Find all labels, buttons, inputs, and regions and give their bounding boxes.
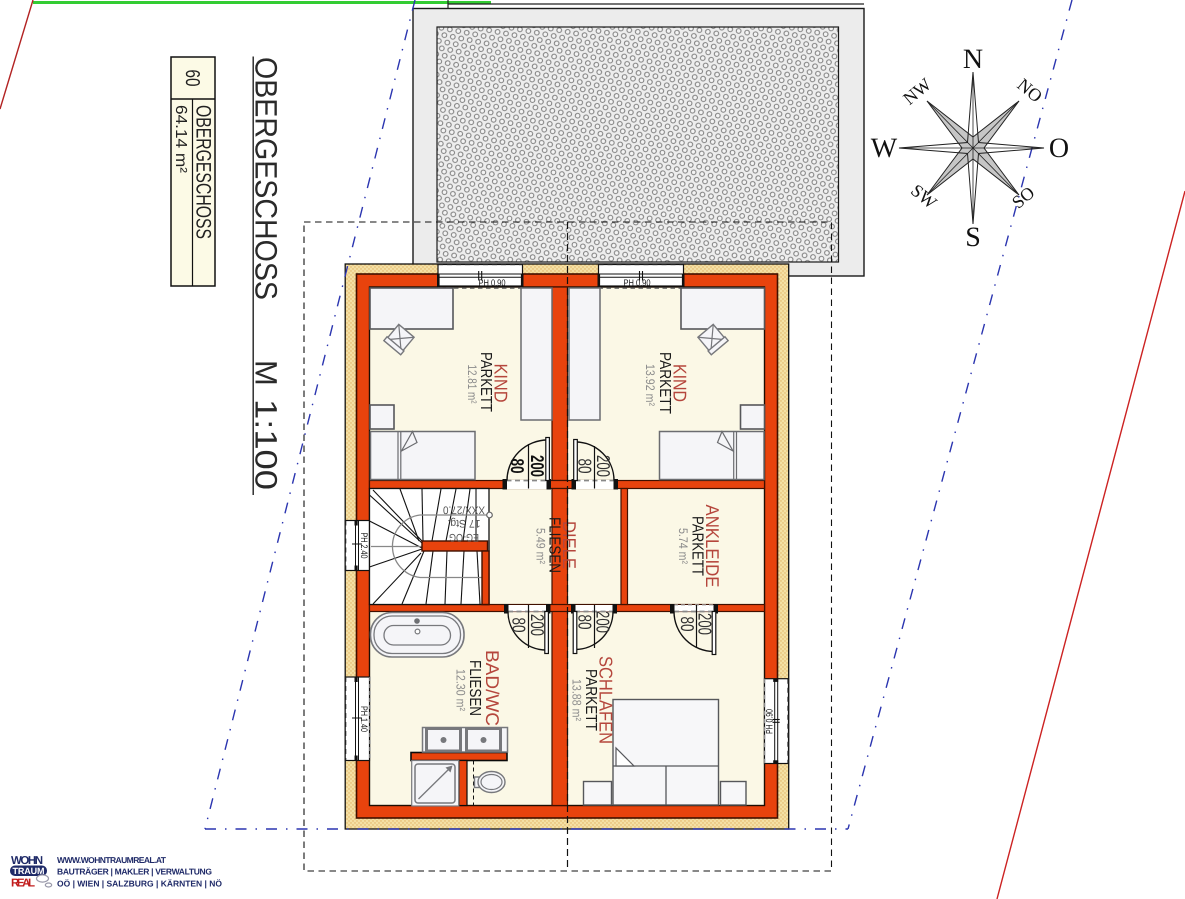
svg-text:PH 1.40: PH 1.40 <box>358 706 369 732</box>
svg-text:OBERGESCHOSS: OBERGESCHOSS <box>249 57 284 300</box>
svg-text:200: 200 <box>593 455 614 477</box>
svg-text:N: N <box>963 44 983 75</box>
svg-text:PH 0.90: PH 0.90 <box>764 709 775 734</box>
svg-text:60: 60 <box>181 70 203 87</box>
svg-text:BAUTRÄGER | MAKLER | VERWALTUN: BAUTRÄGER | MAKLER | VERWALTUNG <box>57 867 212 877</box>
svg-text:17 Stg.: 17 Stg. <box>448 517 481 529</box>
svg-text:12.81 m²: 12.81 m² <box>465 365 479 404</box>
svg-text:BAD/WC: BAD/WC <box>482 650 503 726</box>
svg-text:PARKETT: PARKETT <box>656 352 673 414</box>
svg-text:O: O <box>1049 133 1069 164</box>
svg-text:XXX/27.0: XXX/27.0 <box>443 504 485 516</box>
svg-text:S: S <box>965 222 981 253</box>
svg-text:80: 80 <box>509 618 530 633</box>
svg-text:TRAUM: TRAUM <box>13 866 45 876</box>
svg-text:W: W <box>871 133 898 164</box>
svg-text:64.14 m²: 64.14 m² <box>172 105 189 174</box>
svg-text:PH 0.90: PH 0.90 <box>624 278 651 289</box>
svg-text:5.74 m²: 5.74 m² <box>676 528 690 564</box>
svg-text:1:100: 1:100 <box>249 399 284 490</box>
svg-text:M: M <box>249 360 284 386</box>
svg-text:OÖ | WIEN | SALZBURG | KÄRNTEN: OÖ | WIEN | SALZBURG | KÄRNTEN | NÖ <box>57 879 222 889</box>
svg-text:REAL: REAL <box>11 878 35 890</box>
svg-text:80: 80 <box>575 459 596 474</box>
svg-text:200: 200 <box>695 613 716 635</box>
svg-text:PH 2.40: PH 2.40 <box>358 533 369 559</box>
svg-text:200: 200 <box>527 455 548 477</box>
svg-text:OBERGESCHOSS: OBERGESCHOSS <box>192 105 215 239</box>
svg-text:80: 80 <box>507 459 528 474</box>
svg-text:WWW.WOHNTRAUMREAL.AT: WWW.WOHNTRAUMREAL.AT <box>57 855 167 865</box>
svg-text:5.49 m²: 5.49 m² <box>534 528 548 564</box>
svg-text:200: 200 <box>593 611 614 633</box>
svg-text:12.30 m²: 12.30 m² <box>453 669 467 711</box>
svg-text:200: 200 <box>527 614 548 636</box>
svg-text:13.92 m²: 13.92 m² <box>643 364 657 406</box>
svg-text:EG-OG: EG-OG <box>449 531 479 543</box>
svg-text:80: 80 <box>574 615 595 630</box>
svg-text:PH 0.90: PH 0.90 <box>479 278 506 289</box>
svg-text:13.88 m²: 13.88 m² <box>570 679 584 721</box>
